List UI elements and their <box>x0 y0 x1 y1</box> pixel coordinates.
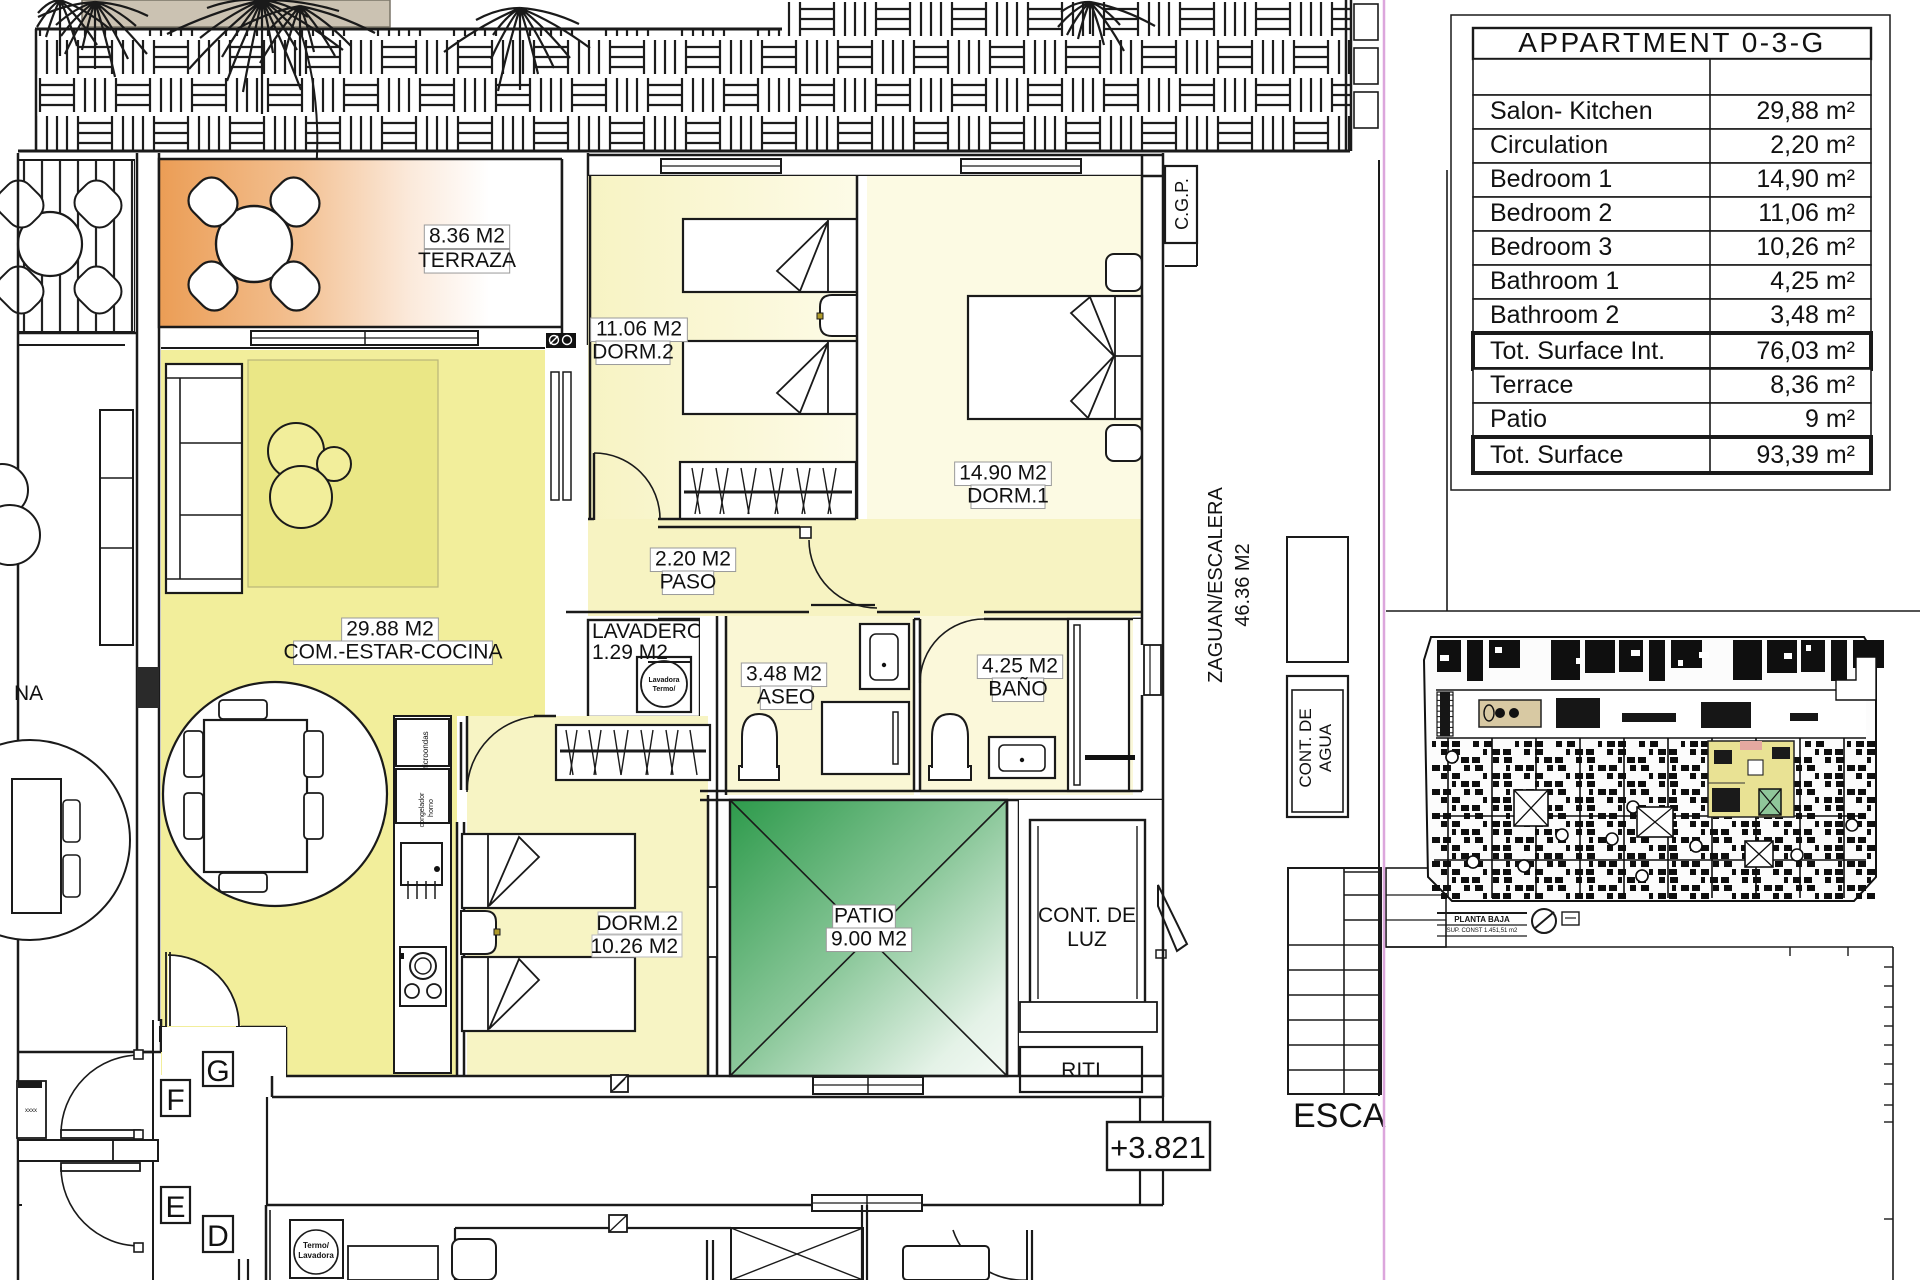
svg-text:TERRAZA: TERRAZA <box>418 249 516 272</box>
svg-text:Salon- Kitchen: Salon- Kitchen <box>1490 97 1653 125</box>
svg-text:29,88 m²: 29,88 m² <box>1756 97 1855 125</box>
svg-text:10,26 m²: 10,26 m² <box>1756 233 1855 261</box>
svg-text:CONT. DE: CONT. DE <box>1038 904 1136 927</box>
svg-text:DORM.2: DORM.2 <box>592 341 674 364</box>
svg-text:Tot. Surface Int.: Tot. Surface Int. <box>1490 337 1665 365</box>
svg-text:PASO: PASO <box>660 571 717 594</box>
svg-text:congelador: congelador <box>419 792 426 827</box>
svg-text:E: E <box>165 1191 185 1224</box>
svg-text:11,06 m²: 11,06 m² <box>1758 199 1855 227</box>
svg-text:Termo/: Termo/ <box>653 686 676 693</box>
svg-text:3.48 M2: 3.48 M2 <box>746 663 822 686</box>
svg-text:8,36 m²: 8,36 m² <box>1770 371 1855 399</box>
svg-text:46.36 M2: 46.36 M2 <box>1232 543 1254 626</box>
svg-text:Bedroom 1: Bedroom 1 <box>1490 165 1612 193</box>
svg-text:8.36 M2: 8.36 M2 <box>429 225 505 248</box>
svg-text:Bedroom 3: Bedroom 3 <box>1490 233 1612 261</box>
svg-text:76,03 m²: 76,03 m² <box>1756 337 1855 365</box>
svg-text:Termo/: Termo/ <box>303 1241 330 1250</box>
svg-text:DORM.2: DORM.2 <box>596 912 678 935</box>
svg-text:Circulation: Circulation <box>1490 131 1608 159</box>
svg-text:ASEO: ASEO <box>757 686 815 709</box>
svg-text:ESCA: ESCA <box>1293 1097 1386 1135</box>
svg-text:DORM.1: DORM.1 <box>967 485 1049 508</box>
svg-text:F: F <box>166 1084 184 1117</box>
svg-text:SUP. CONST 1.451,51 m2: SUP. CONST 1.451,51 m2 <box>1447 928 1518 934</box>
svg-text:3,48 m²: 3,48 m² <box>1770 301 1855 329</box>
svg-text:1.29 M2: 1.29 M2 <box>592 641 668 664</box>
svg-text:9 m²: 9 m² <box>1805 405 1855 433</box>
svg-text:ZAGUAN/ESCALERA: ZAGUAN/ESCALERA <box>1205 487 1227 683</box>
svg-text:4.25 M2: 4.25 M2 <box>982 655 1058 678</box>
svg-text:Bathroom 2: Bathroom 2 <box>1490 301 1619 329</box>
svg-text:Bedroom 2: Bedroom 2 <box>1490 199 1612 227</box>
svg-text:COM.-ESTAR-COCINA: COM.-ESTAR-COCINA <box>284 641 503 664</box>
svg-text:2,20 m²: 2,20 m² <box>1770 131 1855 159</box>
svg-text:Tot. Surface: Tot. Surface <box>1490 441 1623 469</box>
svg-text:microondas: microondas <box>421 731 430 772</box>
svg-text:BAÑO: BAÑO <box>988 677 1048 701</box>
svg-text:93,39 m²: 93,39 m² <box>1756 441 1855 469</box>
svg-text:10.26 M2: 10.26 M2 <box>590 935 678 958</box>
svg-text:PATIO: PATIO <box>834 905 894 928</box>
svg-text:29.88 M2: 29.88 M2 <box>346 618 434 641</box>
svg-text:Lavadora: Lavadora <box>648 677 679 684</box>
svg-text:LAVADERO: LAVADERO <box>592 620 703 643</box>
svg-text:D: D <box>207 1220 229 1253</box>
svg-text:PLANTA BAJA: PLANTA BAJA <box>1454 915 1510 924</box>
svg-text:RITI: RITI <box>1061 1059 1101 1082</box>
svg-text:11.06 M2: 11.06 M2 <box>596 318 682 341</box>
svg-text:G: G <box>206 1055 229 1088</box>
svg-text:xxxx: xxxx <box>25 1108 37 1114</box>
svg-text:Terrace: Terrace <box>1490 371 1573 399</box>
svg-text:2.20 M2: 2.20 M2 <box>655 548 731 571</box>
svg-text:C.G.P.: C.G.P. <box>1172 178 1192 230</box>
svg-text:14.90 M2: 14.90 M2 <box>959 462 1047 485</box>
svg-text:AGUA: AGUA <box>1316 723 1335 772</box>
svg-text:horno: horno <box>428 799 435 817</box>
svg-text:NA: NA <box>14 682 43 705</box>
svg-text:LUZ: LUZ <box>1067 928 1107 951</box>
svg-text:+3.821: +3.821 <box>1110 1130 1206 1165</box>
svg-text:14,90 m²: 14,90 m² <box>1756 165 1855 193</box>
svg-text:9.00 M2: 9.00 M2 <box>831 928 907 951</box>
svg-text:Lavadora: Lavadora <box>298 1251 334 1260</box>
svg-text:APPARTMENT 0-3-G: APPARTMENT 0-3-G <box>1518 27 1826 58</box>
svg-text:Patio: Patio <box>1490 405 1547 433</box>
svg-text:CONT. DE: CONT. DE <box>1296 708 1315 787</box>
svg-text:Bathroom 1: Bathroom 1 <box>1490 267 1619 295</box>
svg-text:4,25 m²: 4,25 m² <box>1770 267 1855 295</box>
